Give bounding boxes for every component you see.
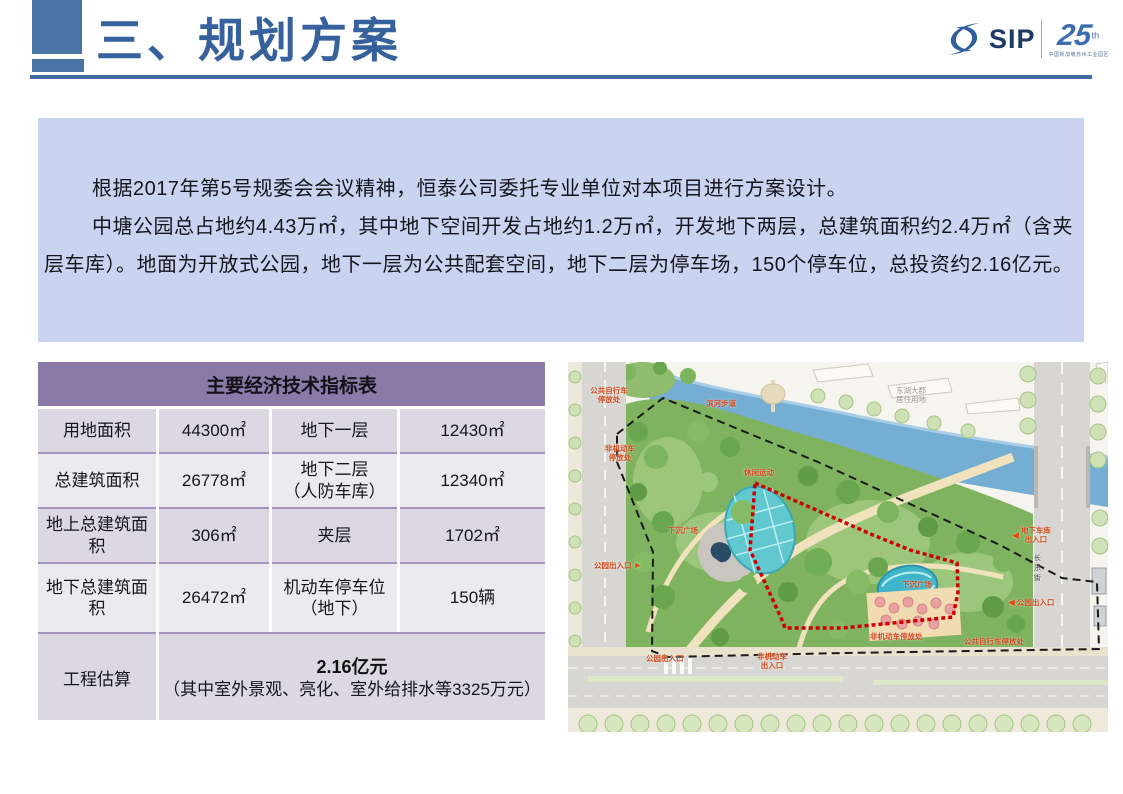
label-park-entrance-bottom: 公园出入口 (646, 654, 684, 663)
table-row: 总建筑面积 26778㎡ 地下二层 （人防车库） 12340㎡ (38, 452, 545, 507)
label-bike-parking-bottom: 公共自行车停放处 (964, 637, 1024, 646)
row-value-2: 12430㎡ (400, 406, 545, 452)
row-label: 总建筑面积 (38, 452, 156, 507)
label-park-entrance-right: ◀ 公园出入口 (1008, 597, 1054, 608)
table-footer-row: 工程估算 2.16亿元 （其中室外景观、亮化、室外给排水等3325万元） (38, 632, 545, 720)
label-non-motor-parking-left: 非机动车 停放处 (594, 444, 646, 462)
slide: 三、规划方案 SIP 25th 中国新加坡苏州工业园区 根据2017年第5号规委… (0, 0, 1123, 794)
page-title: 三、规划方案 (96, 2, 402, 71)
right-arrow-icon: ► (634, 560, 643, 571)
header-accent-bar (32, 59, 84, 72)
indicator-table: 主要经济技术指标表 用地面积 44300㎡ 地下一层 12430㎡ 总建筑面积 … (38, 362, 545, 720)
sip-logo-text: SIP (989, 24, 1036, 55)
label-leisure-sports: 休闲运动 (744, 468, 774, 477)
estimate-label: 工程估算 (63, 665, 131, 690)
table-row: 地上总建筑面积 306㎡ 夹层 1702㎡ (38, 507, 545, 562)
label-residential-area: 东湖大郡 居住用地 (896, 386, 926, 404)
table-title: 主要经济技术指标表 (38, 362, 545, 406)
row-value: 44300㎡ (159, 406, 269, 452)
row-label-2: 夹层 (272, 507, 397, 562)
label-changle-street: 长乐街 (1032, 554, 1040, 584)
intro-paragraph-1: 根据2017年第5号规委会会议精神，恒泰公司委托专业单位对本项目进行方案设计。 (44, 170, 1076, 208)
label-sunken-plaza-right: 下沉广场 (902, 580, 932, 589)
row-label-2: 机动车停车位 （地下） (272, 562, 397, 632)
label-riverside-walk: 滨河步道 (706, 399, 736, 408)
site-plan-graphic (568, 362, 1108, 732)
park-entrance-right-text: 公园出入口 (1017, 598, 1055, 607)
label-bike-parking-top: 公共自行车 停放处 (578, 386, 640, 404)
label-garage-entrance: ◀ 地下车库 出入口 (1012, 526, 1051, 544)
header-rule (30, 75, 1092, 79)
anniversary-logo: 25th 中国新加坡苏州工业园区 (1048, 21, 1109, 58)
label-non-motor-entrance-bottom: 非机动车 出入口 (752, 652, 792, 670)
header-accent-square (32, 0, 82, 54)
estimate-note: （其中室外景观、亮化、室外给排水等3325万元） (163, 679, 541, 701)
row-label-2: 地下二层 （人防车库） (272, 452, 397, 507)
estimate-value-cell: 2.16亿元 （其中室外景观、亮化、室外给排水等3325万元） (159, 632, 545, 720)
left-arrow-icon: ◀ (1012, 530, 1019, 541)
park-entrance-left-text: 公园出入口 (594, 561, 632, 570)
row-value: 26472㎡ (159, 562, 269, 632)
row-value: 26778㎡ (159, 452, 269, 507)
anniversary-number: 25 (1056, 21, 1094, 51)
row-value-2: 1702㎡ (400, 507, 545, 562)
row-label-2: 地下一层 (272, 406, 397, 452)
table-row: 用地面积 44300㎡ 地下一层 12430㎡ (38, 406, 545, 452)
estimate-label-cell: 工程估算 (38, 632, 156, 720)
sip-swoosh-icon (945, 20, 983, 58)
left-arrow-icon: ◀ (1008, 597, 1015, 608)
row-label: 用地面积 (38, 406, 156, 452)
label-non-motor-parking-bottom: 非机动车停放处 (870, 632, 923, 641)
row-value: 306㎡ (159, 507, 269, 562)
sip-logo: SIP 25th 中国新加坡苏州工业园区 (945, 20, 1109, 58)
table-row: 地下总建筑面积 26472㎡ 机动车停车位 （地下） 150辆 (38, 562, 545, 632)
garage-entrance-text: 地下车库 出入口 (1021, 526, 1051, 544)
logo-divider (1041, 20, 1042, 58)
anniversary-subtext: 中国新加坡苏州工业园区 (1048, 53, 1109, 58)
intro-paragraph-2: 中塘公园总占地约4.43万㎡，其中地下空间开发占地约1.2万㎡，开发地下两层，总… (44, 208, 1076, 284)
anniversary-suffix: th (1092, 30, 1100, 40)
label-park-entrance-left: 公园出入口 ► (594, 560, 642, 571)
row-label: 地下总建筑面积 (38, 562, 156, 632)
row-value-2: 12340㎡ (400, 452, 545, 507)
site-plan: 公共自行车 停放处 滨河步道 非机动车 停放处 下沉广场 休闲运动 下沉广场 东… (568, 362, 1108, 732)
label-sunken-plaza: 下沉广场 (668, 526, 698, 535)
row-label: 地上总建筑面积 (38, 507, 156, 562)
estimate-amount: 2.16亿元 (316, 653, 387, 679)
intro-box: 根据2017年第5号规委会会议精神，恒泰公司委托专业单位对本项目进行方案设计。 … (38, 118, 1084, 342)
row-value-2: 150辆 (400, 562, 545, 632)
